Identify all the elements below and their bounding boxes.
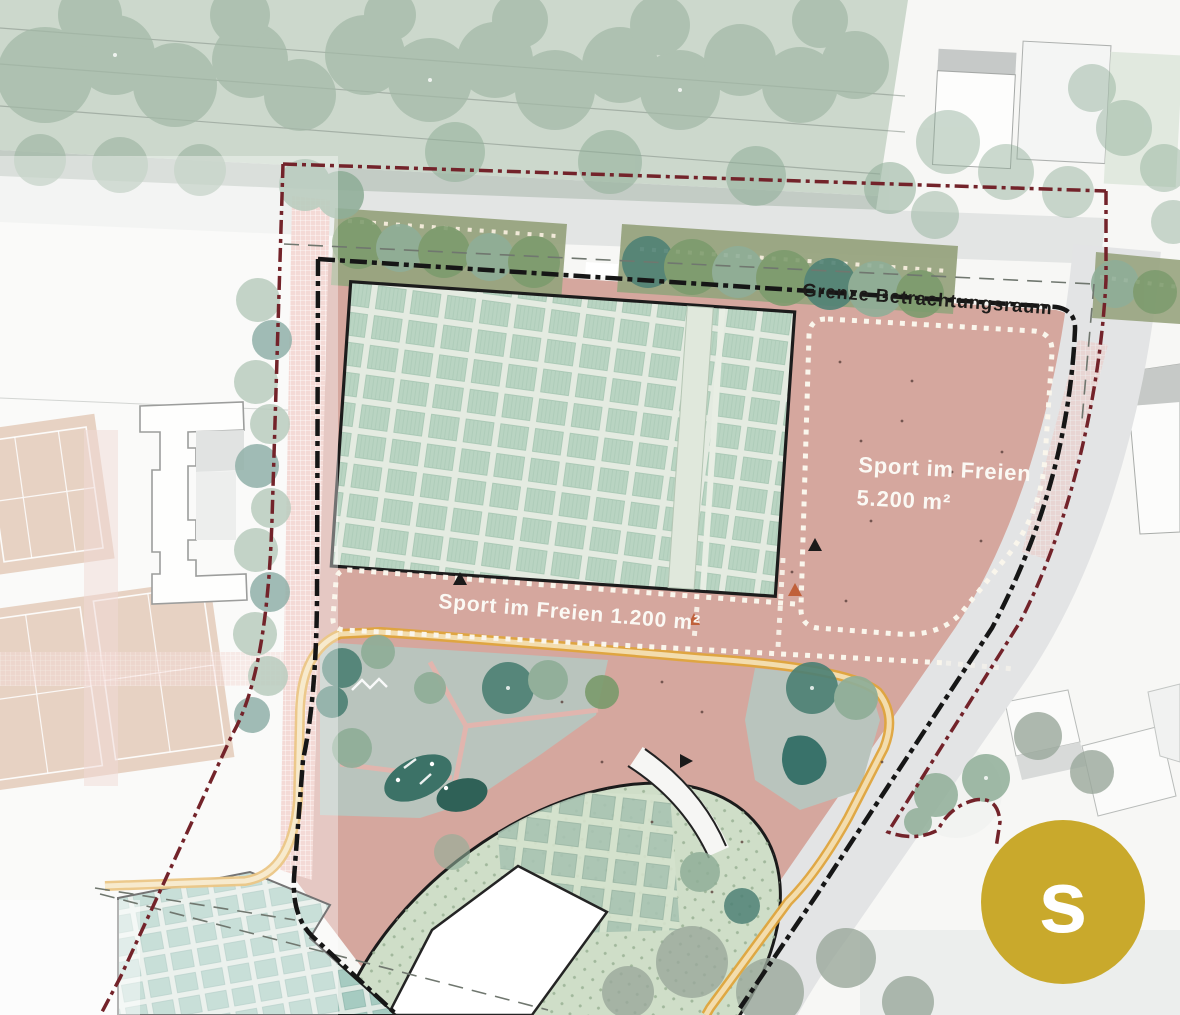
context-wash — [0, 900, 140, 1015]
sports-hall-building — [331, 282, 794, 597]
label-sport-im-freien-5200-area: 5.200 m² — [856, 485, 952, 515]
marker-badge-s: s — [981, 820, 1145, 984]
context-wash — [0, 156, 338, 1015]
site-plan-canvas: Grenze Betrachtungsraum Sport im Freien … — [0, 0, 1180, 1015]
marker-letter-s: s — [1039, 852, 1088, 951]
site-plan-page: Grenze Betrachtungsraum Sport im Freien … — [0, 0, 1180, 1015]
